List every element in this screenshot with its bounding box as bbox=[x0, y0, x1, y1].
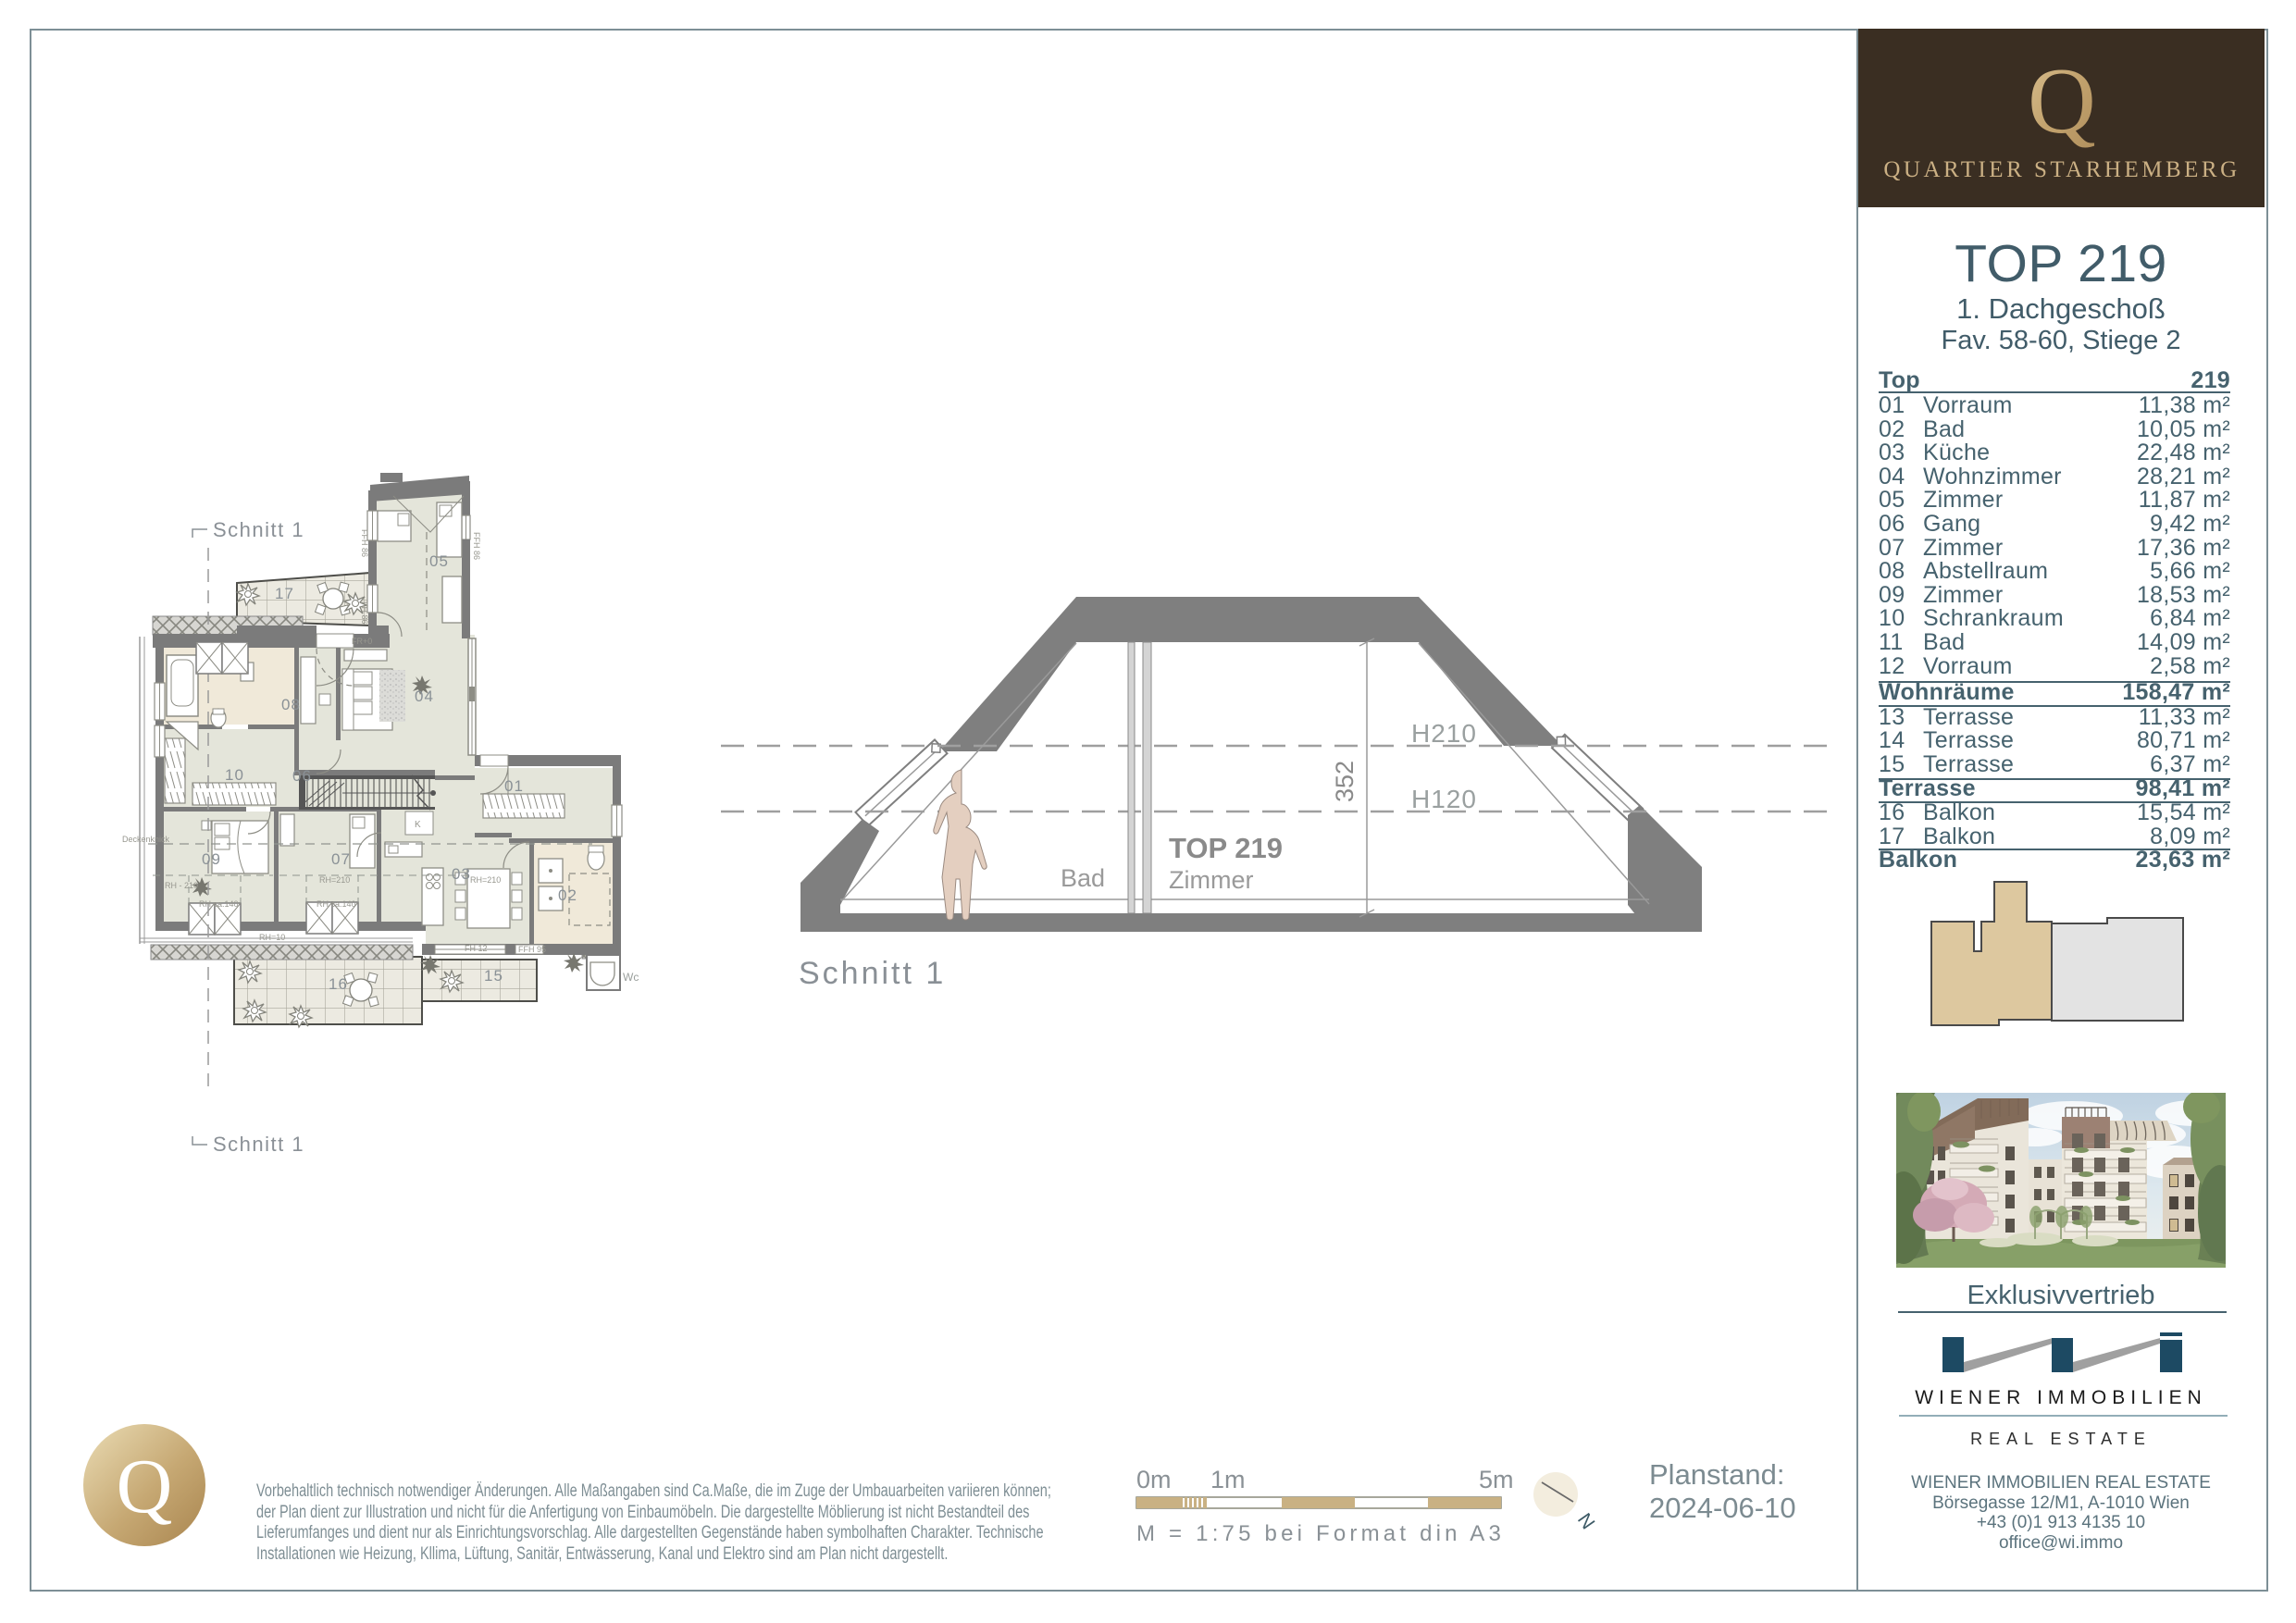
svg-text:Bad: Bad bbox=[1061, 864, 1105, 892]
svg-text:03: 03 bbox=[452, 865, 471, 883]
svg-text:09: 09 bbox=[202, 850, 221, 868]
svg-text:04: 04 bbox=[415, 688, 434, 705]
svg-text:K: K bbox=[415, 820, 421, 830]
svg-text:17: 17 bbox=[275, 585, 294, 602]
svg-text:M = 1:75 bei Format din A3: M = 1:75 bei Format din A3 bbox=[1136, 1521, 1505, 1546]
svg-text:02: 02 bbox=[558, 886, 577, 904]
svg-text:REAL ESTATE: REAL ESTATE bbox=[1970, 1430, 2152, 1448]
svg-text:RH ca.140: RH ca.140 bbox=[199, 899, 239, 909]
svg-text:07: 07 bbox=[331, 850, 351, 868]
svg-text:01: 01 bbox=[504, 777, 524, 795]
svg-text:N: N bbox=[1573, 1509, 1599, 1533]
svg-text:FFH 86: FFH 86 bbox=[360, 529, 369, 557]
svg-text:06: 06 bbox=[292, 767, 312, 785]
svg-text:RH=210: RH=210 bbox=[470, 875, 501, 885]
svg-text:FH 86: FH 86 bbox=[360, 601, 369, 625]
svg-text:10: 10 bbox=[225, 766, 244, 784]
svg-text:QUARTIER STARHEMBERG: QUARTIER STARHEMBERG bbox=[1883, 157, 2240, 182]
svg-text:WIENER IMMOBILIEN: WIENER IMMOBILIEN bbox=[1915, 1387, 2207, 1408]
svg-text:352: 352 bbox=[1331, 761, 1359, 802]
svg-text:15: 15 bbox=[484, 967, 503, 985]
svg-text:FFH 86: FFH 86 bbox=[472, 532, 481, 560]
svg-text:Schnitt 1: Schnitt 1 bbox=[213, 518, 304, 541]
svg-text:Deckenknick: Deckenknick bbox=[122, 835, 170, 844]
svg-text:TOP 219: TOP 219 bbox=[1169, 832, 1283, 864]
svg-text:RH - 210: RH - 210 bbox=[165, 881, 198, 890]
svg-text:5m: 5m bbox=[1479, 1466, 1514, 1493]
svg-text:Zimmer: Zimmer bbox=[1169, 866, 1253, 894]
svg-text:08: 08 bbox=[281, 696, 301, 713]
svg-text:FH 12: FH 12 bbox=[465, 944, 488, 953]
svg-text:RH ca.140: RH ca.140 bbox=[316, 899, 356, 909]
svg-text:0m: 0m bbox=[1136, 1466, 1172, 1493]
svg-text:FFH 95: FFH 95 bbox=[518, 945, 546, 954]
svg-text:16: 16 bbox=[329, 975, 348, 993]
svg-text:Q: Q bbox=[117, 1443, 173, 1530]
svg-text:H120: H120 bbox=[1411, 785, 1477, 813]
svg-text:H210: H210 bbox=[1411, 719, 1477, 748]
svg-text:Q: Q bbox=[2028, 49, 2096, 154]
svg-text:FR+0: FR+0 bbox=[352, 637, 372, 646]
svg-text:Wc: Wc bbox=[623, 971, 639, 984]
svg-text:Schnitt 1: Schnitt 1 bbox=[213, 1133, 304, 1156]
svg-text:RH=210: RH=210 bbox=[319, 875, 350, 885]
svg-text:1m: 1m bbox=[1210, 1466, 1246, 1493]
svg-text:RH=10: RH=10 bbox=[259, 933, 285, 942]
svg-text:05: 05 bbox=[429, 552, 449, 570]
svg-text:Schnitt 1: Schnitt 1 bbox=[799, 956, 946, 991]
